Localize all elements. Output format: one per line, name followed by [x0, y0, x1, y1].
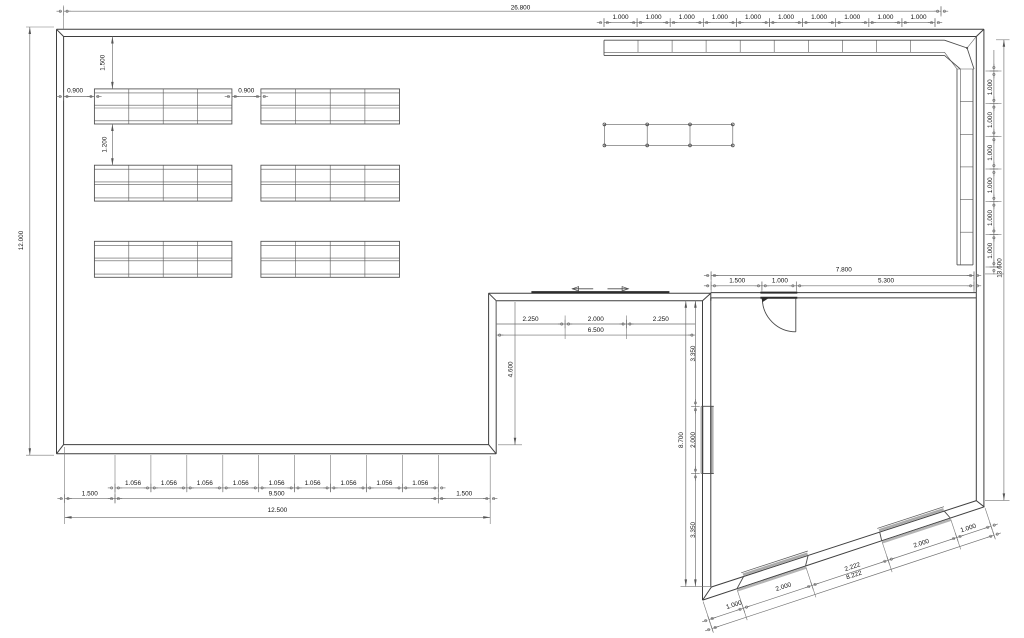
svg-text:2.000: 2.000 — [588, 316, 604, 323]
svg-text:1.056: 1.056 — [161, 480, 177, 487]
svg-text:1.000: 1.000 — [679, 14, 695, 21]
svg-text:13.600: 13.600 — [997, 258, 1004, 278]
svg-text:7.800: 7.800 — [836, 266, 852, 273]
svg-text:1.056: 1.056 — [376, 480, 392, 487]
svg-text:0.900: 0.900 — [67, 88, 83, 95]
svg-text:1.000: 1.000 — [877, 14, 893, 21]
svg-text:1.000: 1.000 — [987, 79, 994, 95]
svg-text:2.000: 2.000 — [775, 581, 793, 593]
svg-text:5.300: 5.300 — [878, 278, 894, 285]
svg-text:1.056: 1.056 — [233, 480, 249, 487]
svg-text:12.500: 12.500 — [268, 507, 288, 514]
svg-text:26.800: 26.800 — [511, 4, 531, 11]
svg-text:8.700: 8.700 — [678, 432, 685, 448]
svg-text:2.250: 2.250 — [653, 316, 669, 323]
svg-text:12.000: 12.000 — [18, 230, 25, 250]
svg-text:1.000: 1.000 — [613, 14, 629, 21]
svg-text:1.000: 1.000 — [778, 14, 794, 21]
svg-text:1.056: 1.056 — [412, 480, 428, 487]
svg-text:1.056: 1.056 — [197, 480, 213, 487]
svg-text:1.000: 1.000 — [911, 14, 927, 21]
svg-text:1.056: 1.056 — [125, 480, 141, 487]
svg-text:1.056: 1.056 — [341, 480, 357, 487]
svg-text:1.000: 1.000 — [811, 14, 827, 21]
svg-text:1.000: 1.000 — [712, 14, 728, 21]
svg-text:1.000: 1.000 — [646, 14, 662, 21]
svg-text:1.000: 1.000 — [844, 14, 860, 21]
svg-text:1.000: 1.000 — [987, 177, 994, 193]
svg-text:6.500: 6.500 — [588, 327, 604, 334]
svg-text:2.000: 2.000 — [690, 431, 697, 447]
svg-text:2.250: 2.250 — [523, 316, 539, 323]
svg-text:1.000: 1.000 — [745, 14, 761, 21]
svg-text:1.056: 1.056 — [269, 480, 285, 487]
svg-text:1.000: 1.000 — [960, 523, 978, 535]
svg-text:1.000: 1.000 — [987, 242, 994, 258]
svg-text:1.500: 1.500 — [100, 54, 107, 70]
svg-text:1.000: 1.000 — [987, 210, 994, 226]
svg-text:1.000: 1.000 — [772, 278, 788, 285]
svg-text:1.000: 1.000 — [987, 144, 994, 160]
svg-text:1.000: 1.000 — [987, 112, 994, 128]
svg-text:1.500: 1.500 — [729, 278, 745, 285]
svg-text:3.350: 3.350 — [690, 521, 697, 537]
svg-text:1.056: 1.056 — [305, 480, 321, 487]
svg-text:1.200: 1.200 — [101, 136, 108, 152]
svg-text:0.900: 0.900 — [238, 88, 254, 95]
svg-text:2.000: 2.000 — [913, 538, 931, 550]
svg-text:1.500: 1.500 — [456, 491, 472, 498]
svg-text:3.350: 3.350 — [690, 345, 697, 361]
svg-text:9.500: 9.500 — [269, 491, 285, 498]
svg-text:4.600: 4.600 — [507, 361, 514, 377]
svg-text:1.500: 1.500 — [82, 491, 98, 498]
